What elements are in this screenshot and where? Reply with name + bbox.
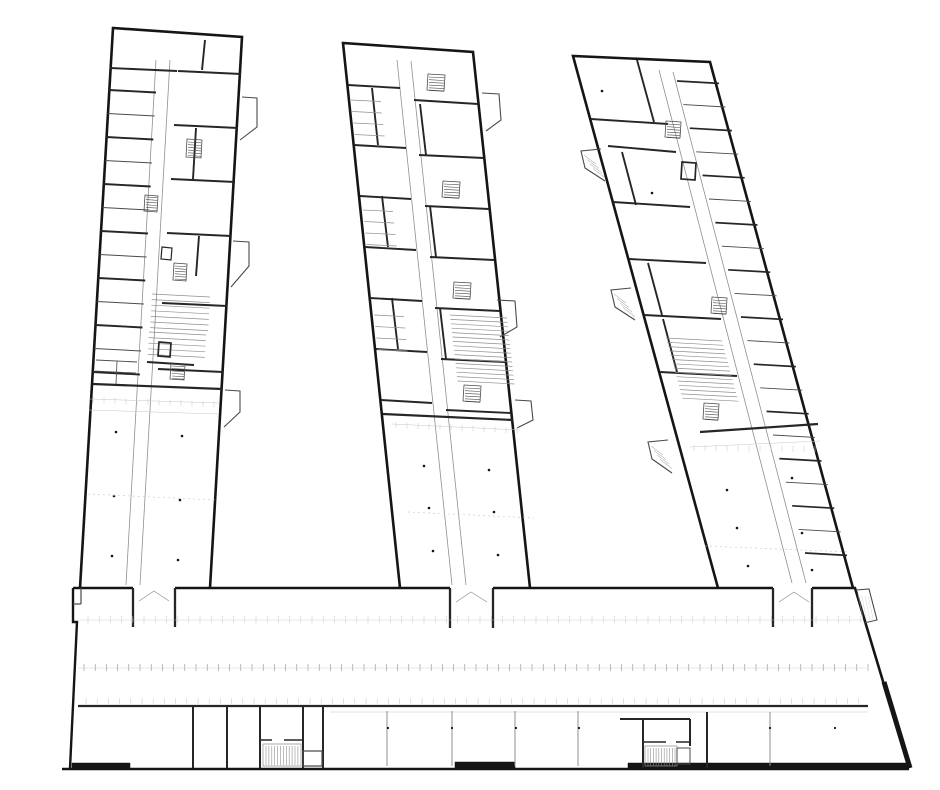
podium [62, 588, 910, 769]
west-tower [80, 28, 257, 588]
floor-plan-svg [0, 0, 940, 790]
center-tower [343, 43, 534, 588]
east-tower [573, 56, 853, 588]
architectural-floor-plan [0, 0, 940, 790]
